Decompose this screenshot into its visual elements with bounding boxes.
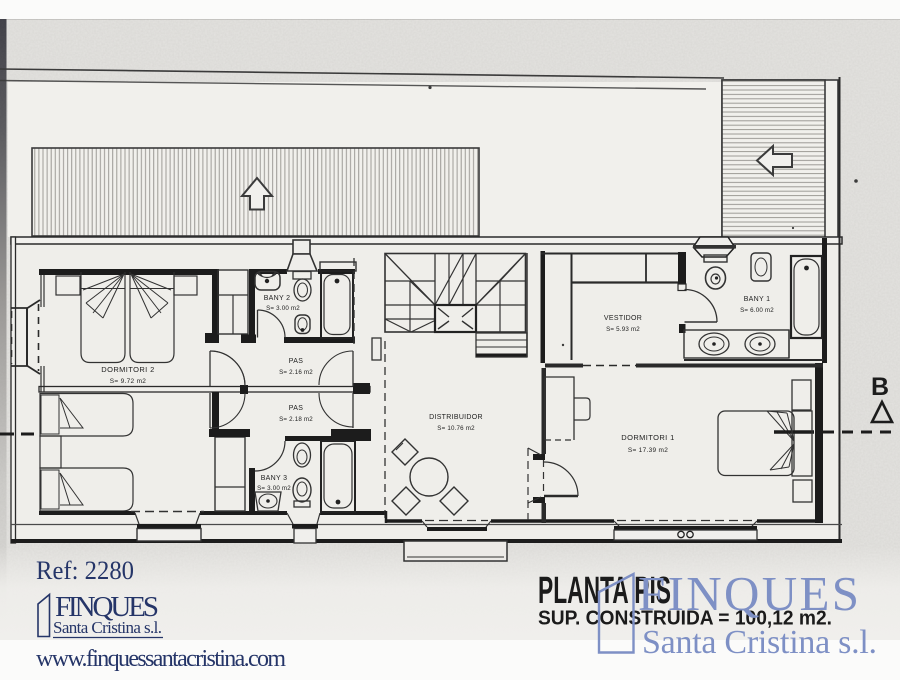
svg-text:BANY 3: BANY 3 [261, 475, 288, 482]
svg-text:Santa Cristina s.l.: Santa Cristina s.l. [642, 624, 877, 661]
svg-text:VESTIDOR: VESTIDOR [604, 315, 642, 322]
svg-text:Santa Cristina s.l.: Santa Cristina s.l. [53, 618, 162, 637]
svg-text:S= 6.00 m2: S= 6.00 m2 [740, 307, 774, 314]
svg-text:S= 3.00 m2: S= 3.00 m2 [257, 485, 291, 492]
svg-text:S= 9.72 m2: S= 9.72 m2 [110, 378, 147, 385]
svg-text:DISTRIBUIDOR: DISTRIBUIDOR [429, 414, 483, 421]
svg-text:B: B [871, 373, 889, 401]
svg-text:S= 3.00 m2: S= 3.00 m2 [266, 305, 300, 312]
svg-text:S= 5.93 m2: S= 5.93 m2 [606, 326, 640, 333]
svg-text:DORMITORI 2: DORMITORI 2 [101, 365, 154, 374]
svg-text:PAS: PAS [289, 405, 303, 412]
svg-text:S= 2.18 m2: S= 2.18 m2 [279, 416, 313, 423]
svg-text:Ref: 2280: Ref: 2280 [36, 556, 134, 585]
svg-text:BANY 2: BANY 2 [264, 295, 291, 302]
svg-text:PAS: PAS [289, 358, 303, 365]
svg-text:DORMITORI 1: DORMITORI 1 [621, 433, 674, 442]
svg-text:BANY 1: BANY 1 [744, 296, 771, 303]
svg-text:S= 10.76 m2: S= 10.76 m2 [437, 425, 475, 432]
svg-text:www.finquessantacristina.com: www.finquessantacristina.com [36, 646, 286, 672]
svg-text:FINQUES: FINQUES [638, 566, 859, 621]
svg-text:S= 2.16 m2: S= 2.16 m2 [279, 369, 313, 376]
svg-text:S= 17.39 m2: S= 17.39 m2 [628, 447, 668, 454]
